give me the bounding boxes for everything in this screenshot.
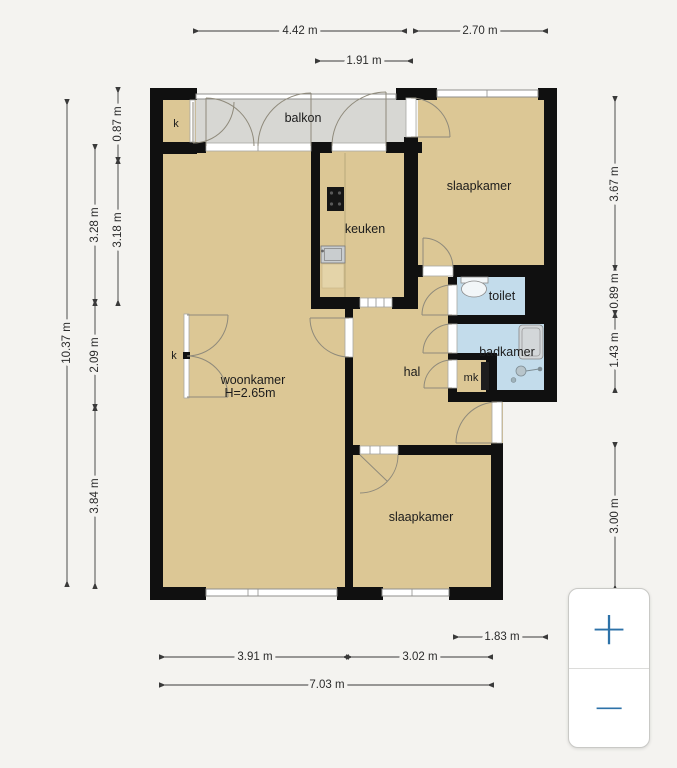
window-bedroom-bottom	[382, 589, 449, 596]
label-mk: mk	[464, 372, 479, 384]
dimension-bottom-703: 7.03 m	[165, 679, 488, 691]
svg-text:3.28 m: 3.28 m	[89, 207, 101, 242]
zoom-out-button[interactable]: −	[569, 669, 649, 748]
svg-text:10.37 m: 10.37 m	[61, 322, 73, 364]
stove-icon	[327, 187, 344, 211]
meter-cabinet-panel	[481, 362, 489, 390]
label-woonkamer: woonkamer	[220, 373, 286, 387]
entrance-door	[492, 402, 502, 443]
svg-text:0.87 m: 0.87 m	[112, 106, 124, 141]
svg-text:4.42 m: 4.42 m	[282, 25, 317, 37]
toilet-icon	[461, 277, 488, 297]
svg-text:1.83 m: 1.83 m	[484, 631, 519, 643]
svg-text:7.03 m: 7.03 m	[309, 679, 344, 691]
zoom-in-button[interactable]: +	[569, 589, 649, 669]
balcony-kitchen-door	[332, 143, 386, 151]
svg-text:1.43 m: 1.43 m	[609, 332, 621, 367]
svg-text:0.89 m: 0.89 m	[609, 273, 621, 308]
closet-mid-door-lower	[184, 356, 189, 398]
label-balkon: balkon	[285, 111, 322, 125]
label-slaapkamer-bottom: slaapkamer	[389, 510, 454, 524]
bedroom-top-door	[423, 266, 453, 276]
label-slaapkamer-top: slaapkamer	[447, 179, 512, 193]
minus-icon: −	[592, 685, 626, 731]
svg-text:3.18 m: 3.18 m	[112, 212, 124, 247]
label-woonkamer-height: H=2.65m	[224, 386, 275, 400]
dimension-left-328: 3.28 m	[89, 150, 101, 300]
dimension-left-1037: 10.37 m	[61, 105, 73, 581]
svg-text:2.70 m: 2.70 m	[462, 25, 497, 37]
dimension-left-209: 2.09 m	[89, 305, 101, 405]
dimension-bottom-391: 3.91 m	[165, 651, 343, 663]
dimension-right-143: 1.43 m	[609, 316, 621, 387]
livingroom-door	[345, 318, 353, 357]
svg-text:3.02 m: 3.02 m	[402, 651, 437, 663]
svg-text:1.91 m: 1.91 m	[346, 55, 381, 67]
closet-mid-door-upper	[184, 314, 189, 354]
plus-icon: +	[590, 601, 629, 655]
dimension-left-087: 0.87 m	[112, 93, 124, 158]
floorplan-viewer: balkon slaapkamer keuken toilet badkamer…	[0, 0, 677, 768]
window-bedroom-top	[437, 90, 538, 97]
dimension-left-318: 3.18 m	[112, 163, 124, 300]
label-badkamer: badkamer	[479, 345, 535, 359]
svg-text:3.91 m: 3.91 m	[237, 651, 272, 663]
label-hal: hal	[404, 365, 421, 379]
bedroom-bottom-door	[360, 446, 398, 454]
label-keuken: keuken	[345, 222, 385, 236]
svg-text:3.84 m: 3.84 m	[89, 478, 101, 513]
mk-door	[448, 360, 457, 388]
dimension-top-442: 4.42 m	[199, 25, 401, 37]
label-toilet: toilet	[489, 289, 516, 303]
dimension-bottom-183: 1.83 m	[459, 631, 542, 643]
kitchen-counter-block	[322, 264, 344, 288]
label-closet-top: k	[173, 118, 179, 130]
dimension-right-089: 0.89 m	[609, 271, 621, 312]
dimension-left-384: 3.84 m	[89, 410, 101, 583]
window-livingroom	[206, 589, 337, 596]
sink-icon	[321, 246, 345, 263]
dimension-top-270: 2.70 m	[419, 25, 542, 37]
balcony-bedroom-door	[406, 98, 416, 137]
svg-text:3.67 m: 3.67 m	[609, 166, 621, 201]
zoom-controls: + −	[568, 588, 650, 748]
dimension-top-191: 1.91 m	[321, 55, 407, 67]
room-floors	[163, 96, 545, 589]
dimension-right-300: 3.00 m	[609, 448, 621, 585]
bathroom-door	[448, 324, 457, 353]
svg-text:3.00 m: 3.00 m	[609, 498, 621, 533]
label-closet-mid: k	[171, 350, 177, 362]
toilet-door	[448, 285, 457, 315]
dimension-bottom-302: 3.02 m	[352, 651, 487, 663]
svg-text:2.09 m: 2.09 m	[89, 337, 101, 372]
dimension-right-367: 3.67 m	[609, 102, 621, 267]
